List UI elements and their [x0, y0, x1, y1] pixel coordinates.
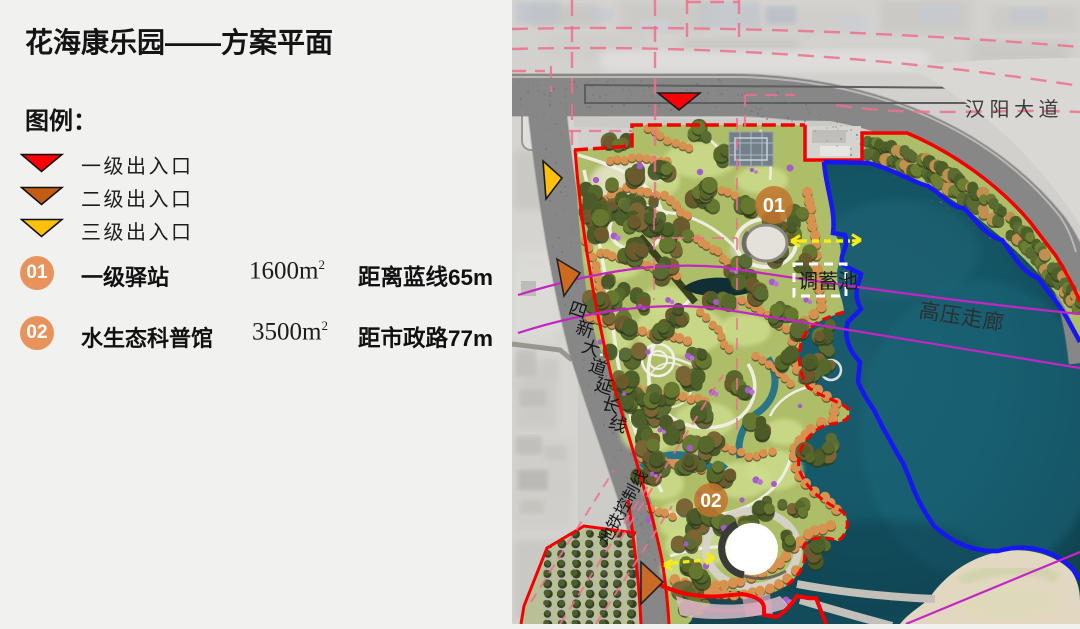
svg-text:01: 01: [763, 195, 785, 217]
svg-text:02: 02: [700, 491, 721, 512]
svg-text:调蓄池: 调蓄池: [798, 270, 858, 293]
svg-text:汉阳大道: 汉阳大道: [965, 98, 1063, 121]
